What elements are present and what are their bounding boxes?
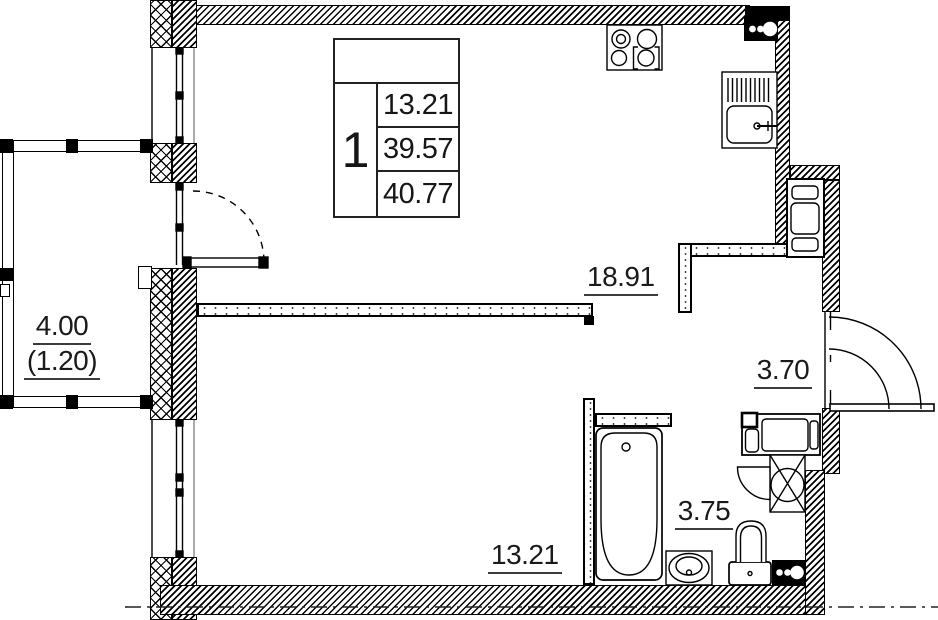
apartment-legend-table: 1 13.21 39.57 40.77 bbox=[333, 38, 460, 218]
bathroom-door-swing-icon bbox=[738, 467, 771, 500]
room-area-label-bathroom: 3.75 bbox=[670, 495, 738, 530]
legend-apartment-area: 39.57 bbox=[378, 128, 458, 172]
legend-living-area: 13.21 bbox=[378, 84, 458, 128]
bathtub-icon bbox=[596, 428, 662, 580]
room-area-label-living-kitchen: 18.91 bbox=[584, 261, 656, 296]
legend-rooms-count: 1 bbox=[335, 84, 378, 216]
washing-machine-icon bbox=[742, 413, 820, 455]
room-area-label-balcony: 4.00 (1.20) bbox=[18, 310, 106, 380]
door-swing-icon bbox=[829, 317, 921, 409]
vent-shaft-icon bbox=[770, 455, 805, 512]
legend-header-cell bbox=[335, 40, 458, 84]
stove-icon bbox=[607, 25, 662, 70]
room-area-label-hallway: 3.70 bbox=[750, 354, 816, 389]
plan-symbols bbox=[0, 0, 938, 620]
area-value: 3.70 bbox=[754, 354, 813, 389]
electrical-panel-icon bbox=[744, 17, 778, 41]
window-icon bbox=[152, 420, 194, 557]
kitchen-sink-icon bbox=[722, 72, 777, 148]
floor-plan: 18.91 13.21 3.70 3.75 4.00 (1.20) 1 13.2… bbox=[0, 0, 938, 620]
area-value: 13.21 bbox=[488, 539, 562, 574]
area-value: 18.91 bbox=[584, 261, 658, 296]
balcony-door-icon bbox=[176, 183, 268, 268]
window-icon bbox=[152, 48, 194, 143]
toilet-icon bbox=[729, 521, 771, 585]
area-value: 3.75 bbox=[675, 495, 734, 530]
area-value: 4.00 bbox=[33, 310, 92, 345]
area-reduced-value: (1.20) bbox=[24, 345, 100, 380]
entry-door-icon bbox=[825, 312, 934, 411]
legend-total-area: 40.77 bbox=[378, 172, 458, 216]
door-swing-icon bbox=[829, 349, 889, 409]
washbasin-icon bbox=[666, 551, 712, 585]
electrical-panel-icon bbox=[772, 560, 805, 585]
room-area-label-room: 13.21 bbox=[488, 539, 560, 574]
door-swing-icon bbox=[193, 191, 264, 262]
cabinet-icon bbox=[787, 179, 824, 257]
